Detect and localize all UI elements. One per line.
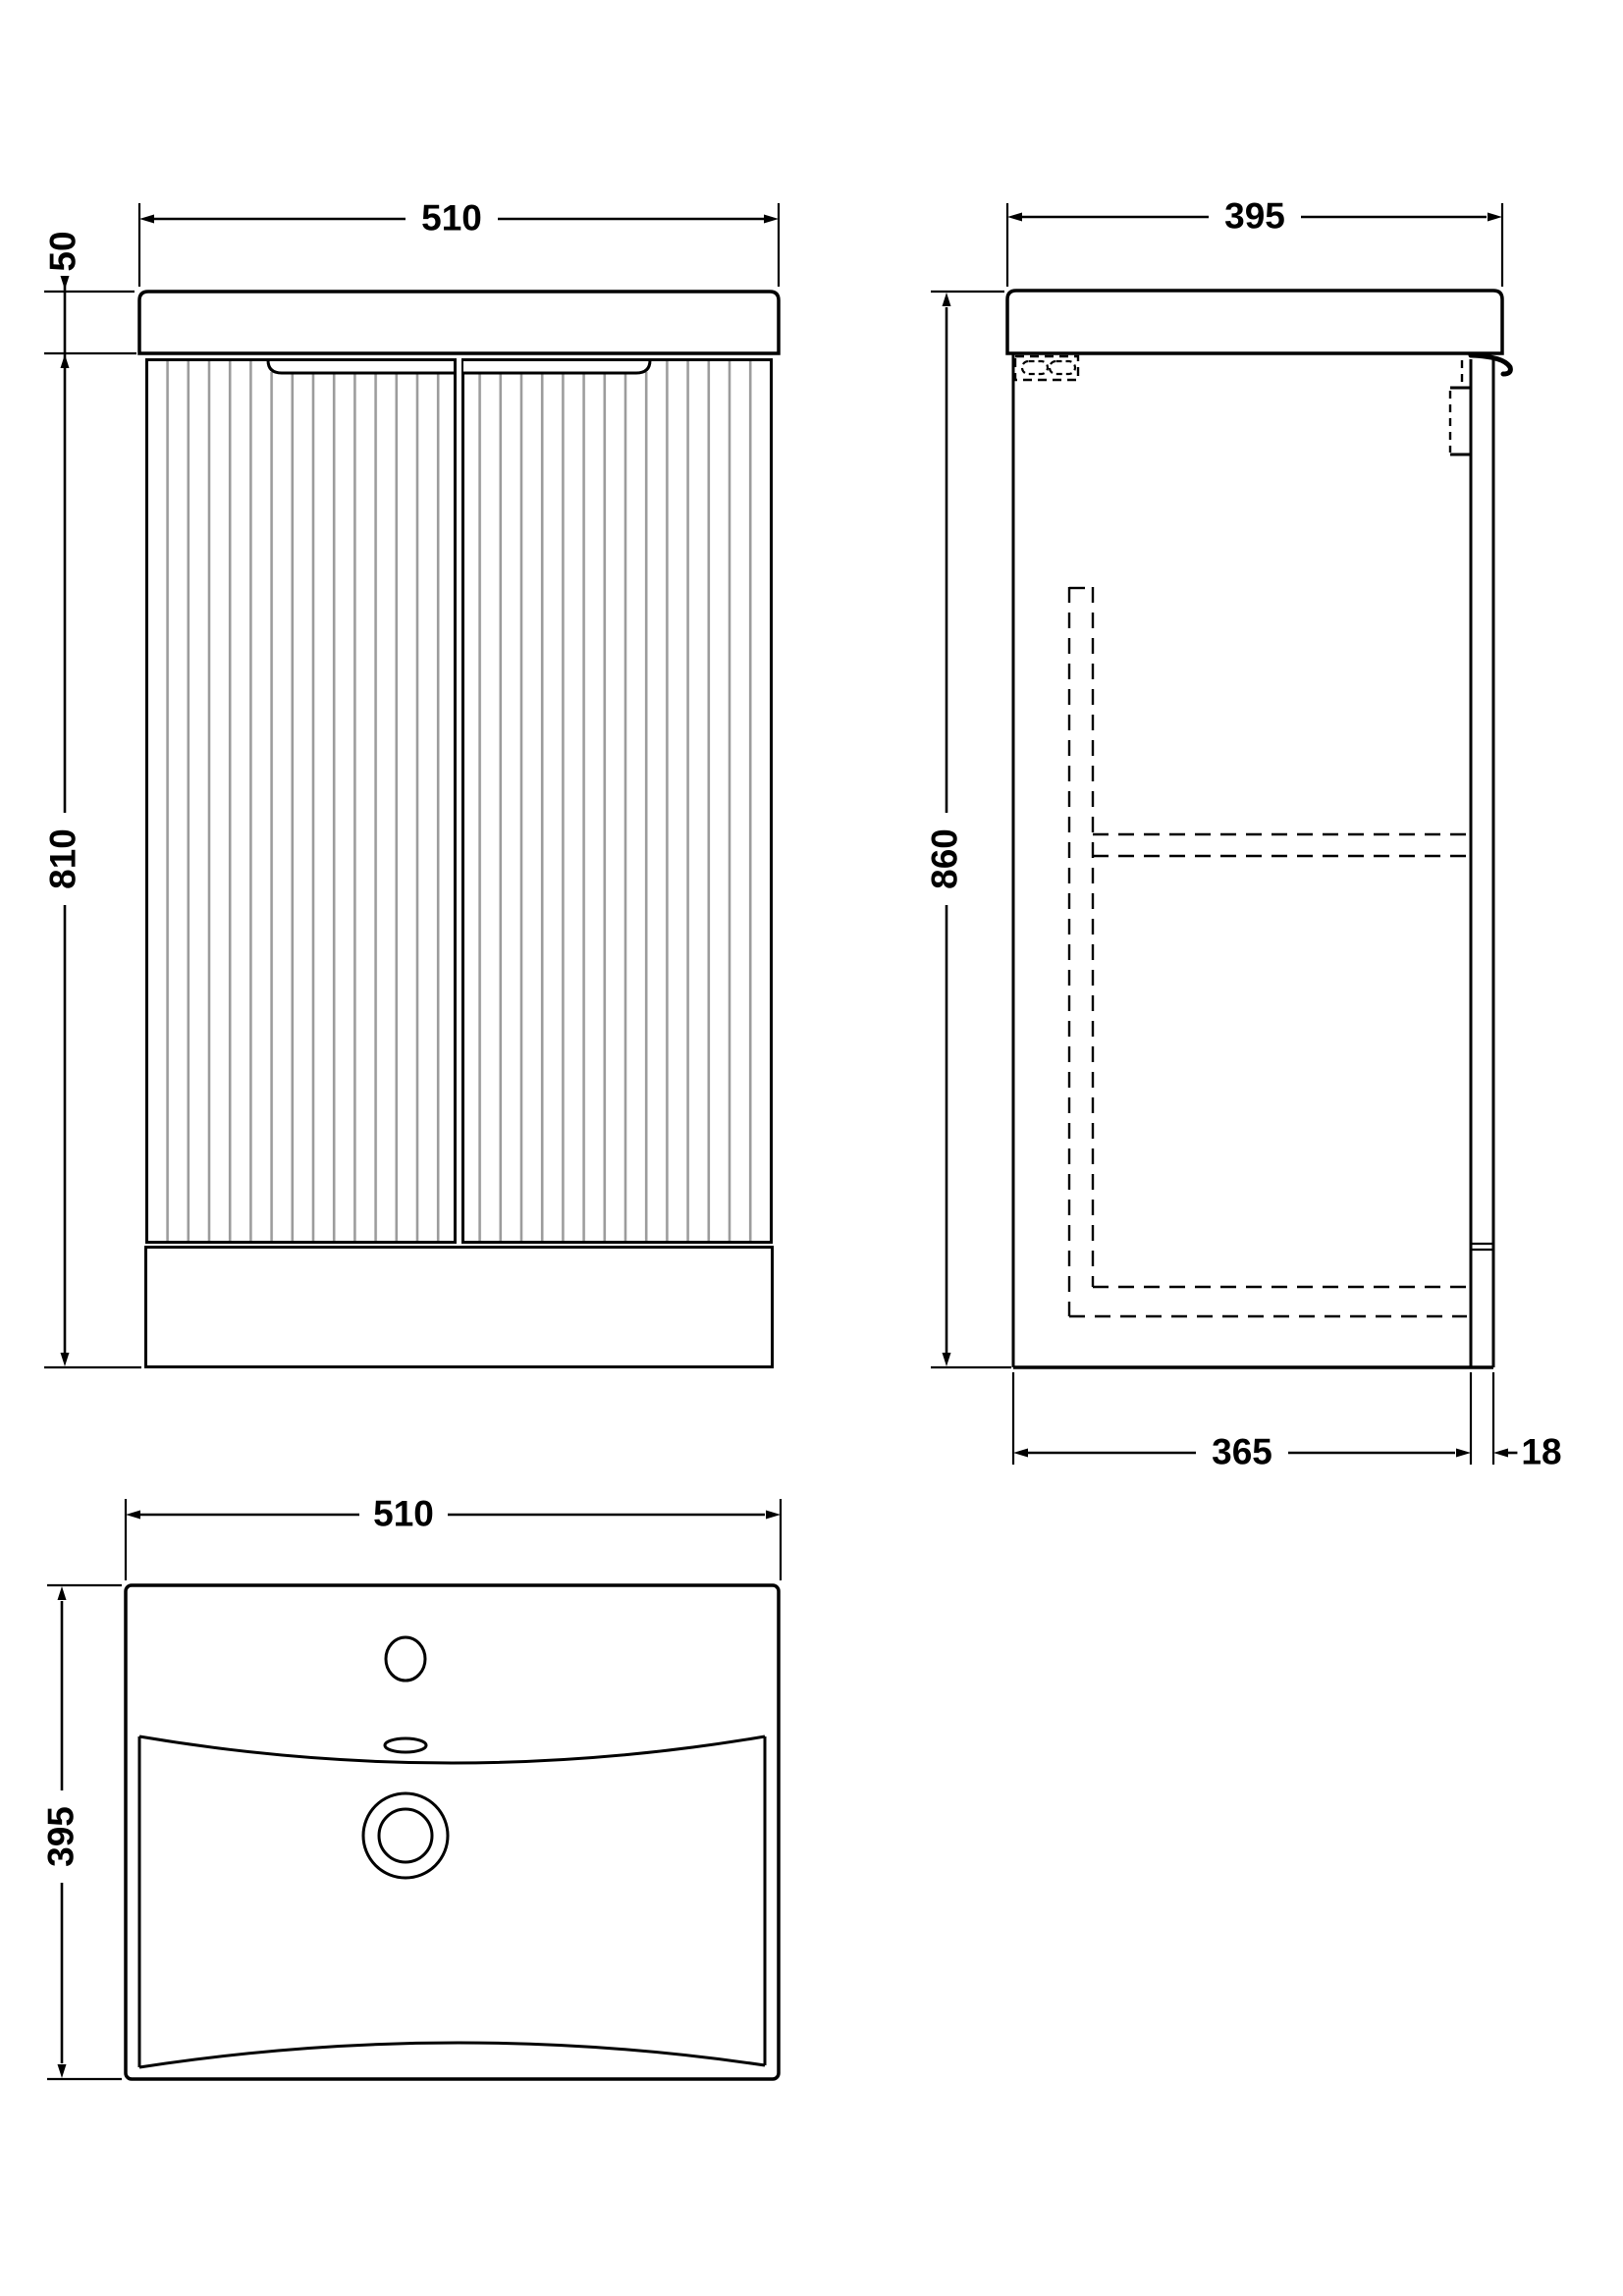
side-basin-top: [1007, 291, 1502, 353]
front-width-dimension: 510: [417, 200, 486, 237]
plan-width-dimension: 510: [369, 1496, 438, 1532]
plan-basin-outline: [126, 1585, 779, 2079]
plan-depth-dimension: 395: [43, 1802, 80, 1871]
plan-view: [47, 1499, 781, 2079]
side-view: [931, 203, 1518, 1465]
front-plinth: [146, 1248, 773, 1367]
side-handle-recess-profile: [1450, 360, 1470, 454]
front-left-door: [147, 360, 456, 1243]
front-right-door: [463, 360, 772, 1243]
side-internal-hidden-lines: [1069, 587, 1467, 1316]
side-depth-dimension: 395: [1220, 198, 1289, 235]
side-carcass-depth-dimension: 365: [1208, 1434, 1276, 1470]
front-cabinet-height-dimension: 810: [45, 825, 81, 893]
technical-drawing-sheet: 510 50 810 395 860 365 18 510 395: [0, 0, 1623, 2296]
side-door-thickness-dimension: 18: [1517, 1434, 1565, 1470]
front-basin-height-dimension: 50: [45, 227, 81, 275]
side-height-dimension: 860: [927, 825, 963, 893]
side-basin-front-lip: [1471, 355, 1510, 374]
plan-overflow-slot: [385, 1738, 426, 1752]
front-view: [44, 203, 779, 1367]
plan-waste-hole-outer: [363, 1793, 448, 1878]
drawing-linework: [0, 0, 1623, 2296]
front-basin-top: [139, 292, 779, 353]
